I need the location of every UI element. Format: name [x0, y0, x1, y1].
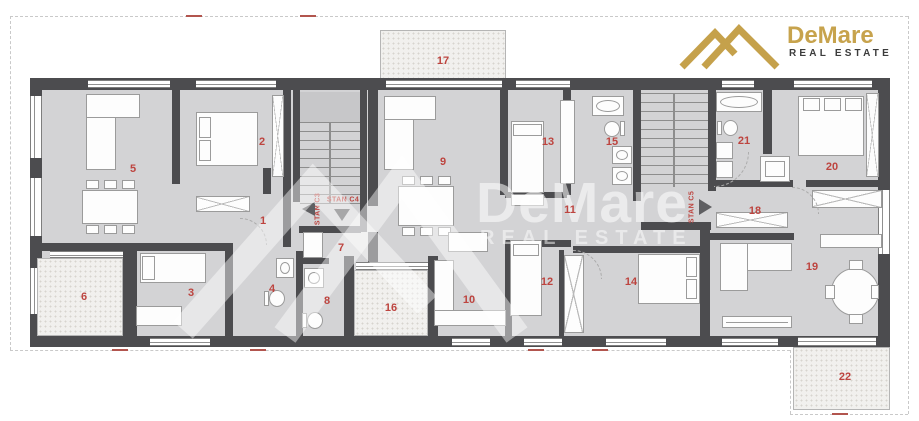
chair [104, 180, 117, 189]
wall [293, 90, 300, 202]
window [516, 80, 570, 88]
room-number-18: 18 [749, 205, 761, 217]
stair-landing [300, 92, 360, 122]
room-number-5: 5 [130, 163, 136, 175]
boundary-red-dash [250, 349, 266, 351]
wall [368, 78, 378, 206]
wall [500, 85, 508, 195]
room-number-17: 17 [437, 55, 449, 67]
room-number-16: 16 [385, 302, 397, 314]
pillow [513, 124, 542, 136]
chair [402, 176, 415, 185]
desk [136, 306, 182, 326]
chair [849, 260, 863, 270]
chair [402, 227, 415, 236]
logo-roofs-icon [678, 20, 784, 72]
dining-table [398, 186, 454, 226]
window [386, 80, 502, 88]
room-number-6: 6 [81, 291, 87, 303]
room-number-8: 8 [324, 295, 330, 307]
chair [86, 225, 99, 234]
wall [225, 251, 233, 347]
chair [86, 180, 99, 189]
boundary-red-dash [112, 349, 128, 351]
wall [806, 180, 890, 187]
boundary-terrace-bottom [790, 414, 908, 415]
wall [633, 85, 641, 201]
tv-stand [722, 316, 792, 328]
boundary-red-dash [592, 349, 608, 351]
room-number-4: 4 [269, 283, 275, 295]
toilet [723, 120, 738, 136]
room-number-19: 19 [806, 261, 818, 273]
logo-brand-text: DeMare [787, 22, 874, 50]
wall [283, 85, 291, 247]
boundary-right [908, 16, 909, 414]
window [794, 80, 872, 88]
chair [122, 225, 135, 234]
window [606, 338, 666, 346]
terrace-rail [356, 262, 428, 270]
room-number-13: 13 [542, 136, 554, 148]
sink [276, 258, 294, 278]
toilet-tank [620, 121, 625, 136]
arrow-left-icon [302, 202, 315, 216]
wall [573, 246, 703, 253]
chair [849, 314, 863, 324]
toilet-tank [717, 121, 722, 135]
window [722, 80, 754, 88]
dresser [196, 196, 250, 212]
room-number-14: 14 [625, 276, 637, 288]
unit-label-stan-c4: STAN C4 [327, 197, 359, 204]
wall [344, 256, 354, 336]
pillow [199, 117, 211, 138]
room-number-1: 1 [260, 215, 266, 227]
pillow [199, 140, 211, 161]
window [798, 337, 876, 346]
boundary-top [10, 16, 908, 17]
room-number-15: 15 [606, 136, 618, 148]
window [88, 80, 170, 88]
chair [104, 225, 117, 234]
sink [592, 96, 624, 116]
room-number-3: 3 [188, 287, 194, 299]
wall [299, 258, 329, 264]
wall [263, 168, 271, 194]
pillow [845, 98, 862, 111]
counter [434, 260, 454, 316]
cabinet [303, 232, 323, 258]
pillow [803, 98, 820, 111]
boundary-red-dash [300, 15, 316, 17]
wall [763, 88, 772, 154]
sofa [720, 243, 748, 291]
shower [760, 156, 790, 182]
toilet [604, 121, 620, 137]
arrow-down-icon [334, 209, 350, 221]
unit-label-stan-c3: STAN C3 [315, 193, 322, 225]
boundary-red-dash [528, 349, 544, 351]
boundary-left [10, 16, 11, 350]
room-number-7: 7 [338, 242, 344, 254]
room-number-10: 10 [463, 294, 475, 306]
pillow [824, 98, 841, 111]
washing-machine [612, 167, 632, 185]
pillow [686, 257, 697, 277]
pillow [686, 279, 697, 299]
wardrobe [272, 95, 284, 177]
arrow-right-icon [699, 199, 712, 215]
terrace-rail [50, 251, 123, 258]
unit-label-stan-c5: STAN C5 [689, 191, 696, 223]
counter [434, 310, 506, 326]
window [30, 178, 42, 236]
sideboard [820, 234, 882, 248]
window [196, 80, 276, 88]
boundary-terrace-left [790, 350, 791, 414]
wall [360, 90, 367, 232]
pillow [513, 244, 539, 256]
cabinet [560, 100, 575, 184]
room-number-11: 11 [564, 204, 576, 216]
chair [871, 285, 879, 299]
boundary-red-dash [832, 413, 848, 415]
chair [438, 176, 451, 185]
boundary-red-dash [186, 15, 202, 17]
window [30, 96, 42, 158]
bed-foot [511, 194, 544, 206]
stair-divider [329, 122, 331, 204]
room-number-22: 22 [839, 371, 851, 383]
chair [122, 180, 135, 189]
floorplan-canvas: STAN C3 STAN C4 STAN C5 DeMare REAL ESTA… [0, 0, 919, 421]
wall [123, 250, 137, 347]
room-number-20: 20 [826, 161, 838, 173]
window [722, 338, 778, 346]
chair [420, 176, 433, 185]
room-number-9: 9 [440, 156, 446, 168]
room-number-2: 2 [259, 136, 265, 148]
wardrobe [866, 93, 879, 177]
room-number-12: 12 [541, 276, 553, 288]
window [150, 338, 210, 346]
logo-tagline-text: REAL ESTATE [789, 48, 892, 59]
chair [825, 285, 835, 299]
wall [172, 78, 180, 184]
chair [420, 227, 433, 236]
wall [708, 233, 794, 240]
sofa [384, 96, 436, 120]
window [452, 338, 490, 346]
dining-table [82, 190, 138, 224]
sink-counter [716, 92, 762, 112]
room-number-21: 21 [738, 135, 750, 147]
sofa [86, 94, 140, 118]
toilet [307, 312, 323, 329]
cabinet [448, 232, 488, 252]
dresser [812, 190, 882, 208]
pillow [142, 256, 155, 280]
window [524, 338, 562, 346]
wall [641, 222, 711, 230]
washing-machine [612, 146, 632, 164]
stair-divider [673, 93, 675, 187]
sink [304, 268, 324, 288]
